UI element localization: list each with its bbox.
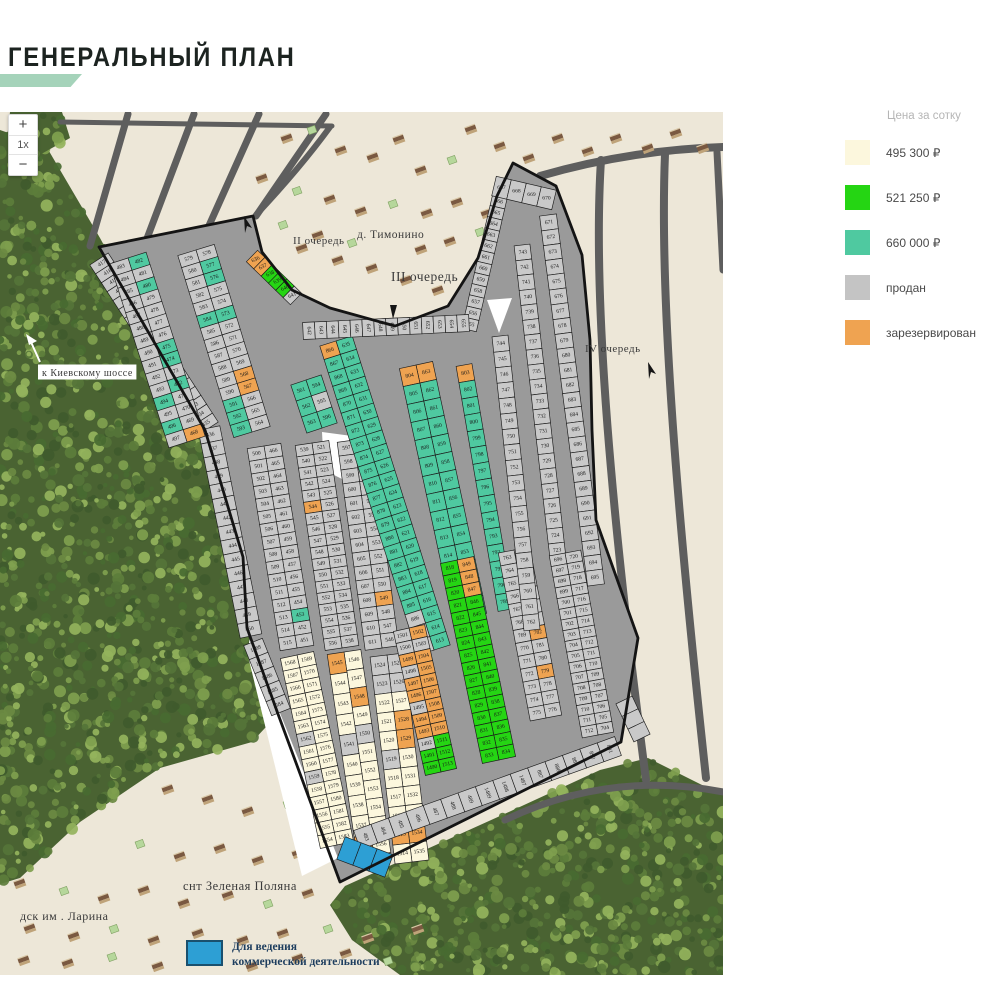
parcel-number: 685: [571, 426, 580, 433]
map-label: снт Зеленая Поляна: [183, 879, 297, 893]
parcel-number: 686: [573, 441, 582, 448]
parcel-number: 755: [515, 511, 524, 518]
parcel-number: 673: [548, 249, 557, 256]
parcel-number: 731: [539, 428, 548, 435]
parcel-number: 538: [345, 638, 354, 645]
parcel-number: 525: [323, 490, 332, 497]
parcel-number: 527: [327, 512, 336, 519]
legend-label: 495 300 ₽: [886, 146, 940, 160]
parcel-number: 532: [335, 569, 344, 576]
parcel-number: 756: [517, 526, 526, 533]
parcel-number: 759: [522, 573, 531, 580]
parcel-number: 736: [530, 354, 539, 361]
parcel-number: 674: [550, 264, 559, 271]
parcel-number: 740: [524, 294, 533, 301]
map-label: к Киевскому шоссе: [38, 365, 136, 380]
parcel-number: 543: [307, 492, 316, 499]
legend-label: продан: [886, 281, 926, 295]
parcel-number: 607: [361, 583, 370, 590]
parcel-number: 724: [551, 532, 560, 539]
map-canvas[interactable]: 4174184194204214224234244254264274284294…: [0, 112, 723, 975]
parcel-number: 669: [527, 192, 536, 198]
parcel-number: 549: [317, 560, 326, 567]
masterplan-map[interactable]: 4174184194204214224234244254264274284294…: [0, 112, 723, 975]
parcel-number: 647: [365, 324, 371, 333]
parcel-number: 644: [329, 325, 335, 334]
parcel-number: 682: [566, 382, 575, 389]
parcel-number: 610: [366, 625, 375, 632]
parcel-number: 550: [377, 581, 386, 588]
parcel-number: 693: [587, 545, 596, 552]
commercial-legend-label: Для ведения коммерческой деятельности: [232, 940, 380, 970]
parcel-number: 533: [337, 581, 346, 588]
swatch-price-660000: [845, 230, 870, 255]
parcel-number: 751: [508, 449, 517, 456]
svg-text:дск им . Ларина: дск им . Ларина: [20, 909, 109, 923]
map-label: III очередь: [391, 269, 458, 284]
parcel-number: 735: [532, 368, 541, 375]
parcel-number: 684: [569, 412, 578, 419]
parcel-number: 648: [377, 323, 383, 332]
legend-label: 660 000 ₽: [886, 236, 940, 250]
parcel-number: 600: [348, 486, 357, 493]
parcel-number: 744: [496, 341, 505, 348]
parcel-number: 603: [353, 528, 362, 535]
parcel-number: 556: [328, 640, 337, 647]
parcel-number: 522: [318, 456, 327, 463]
parcel-number: 548: [381, 609, 390, 616]
parcel-number: 551: [320, 583, 329, 590]
parcel-number: 681: [564, 367, 573, 374]
parcel-number: 688: [577, 471, 586, 478]
legend-item: 660 000 ₽: [845, 230, 995, 255]
parcel-number: 550: [318, 572, 327, 579]
parcel-number: 729: [542, 458, 551, 465]
parcel-number: 547: [313, 538, 322, 545]
parcel-number: 534: [338, 592, 347, 599]
legend-label: зарезервирован: [886, 326, 976, 340]
legend-title: Цена за сотку: [887, 110, 995, 122]
parcel-number: 551: [376, 567, 385, 574]
parcel-number: 528: [328, 524, 337, 531]
parcel-number: 542: [305, 481, 314, 488]
parcel-number: 597: [342, 445, 351, 452]
parcel-number: 760: [523, 588, 532, 595]
parcel-number: 723: [553, 547, 562, 554]
parcel-number: 689: [579, 486, 588, 493]
parcel-number: 758: [520, 557, 529, 564]
legend-label: 521 250 ₽: [886, 191, 940, 205]
parcel-number: 748: [503, 402, 512, 409]
legend-item: зарезервирован: [845, 320, 995, 345]
parcel-number: 754: [513, 495, 522, 502]
parcel-number: 745: [498, 356, 507, 363]
parcel-number: 536: [342, 615, 351, 622]
parcel-number: 535: [340, 604, 349, 611]
page: ГЕНЕРАЛЬНЫЙ ПЛАН 41741841942042142242342…: [0, 0, 1000, 1000]
parcel-number: 739: [525, 309, 534, 316]
price-legend: Цена за сотку 495 300 ₽ 521 250 ₽ 660 00…: [845, 106, 995, 365]
parcel-number: 541: [303, 469, 312, 476]
parcel-number: 548: [315, 549, 324, 556]
parcel-number: 741: [522, 279, 531, 286]
parcel-number: 752: [510, 464, 519, 471]
map-label: д. Тимонино: [357, 229, 424, 241]
svg-text:к Киевскому шоссе: к Киевскому шоссе: [42, 368, 133, 379]
parcel-number: 742: [520, 264, 529, 271]
zoom-in-button[interactable]: +: [9, 115, 37, 135]
map-label: II очередь: [293, 235, 345, 247]
swatch-sold: [845, 275, 870, 300]
parcel-number: 545: [310, 515, 319, 522]
parcel-number: 762: [527, 619, 536, 626]
parcel-number: 730: [541, 443, 550, 450]
parcel-number: 539: [300, 447, 309, 454]
parcel-number: 646: [353, 324, 359, 333]
parcel-number: 604: [355, 542, 364, 549]
parcel-number: 746: [500, 372, 509, 379]
parcel-number: 655: [460, 319, 466, 328]
parcel-number: 749: [505, 418, 514, 425]
parcel-number: 694: [589, 560, 598, 567]
parcel-number: 687: [575, 456, 584, 463]
parcel-number: 645: [341, 325, 347, 334]
parcel-number: 747: [501, 387, 510, 394]
parcel-number: 678: [558, 323, 567, 330]
parcel-number: 668: [512, 189, 521, 195]
parcel-number: 642: [305, 326, 311, 335]
parcel-number: 611: [368, 639, 377, 646]
parcel-number: 553: [372, 540, 381, 547]
zoom-level: 1x: [9, 135, 37, 155]
svg-text:II очередь: II очередь: [293, 235, 345, 247]
parcel-number: 695: [590, 574, 599, 581]
parcel-number: 605: [357, 556, 366, 563]
legend-item: продан: [845, 275, 995, 300]
parcel-number: 753: [512, 480, 521, 487]
map-label: IV очередь: [585, 343, 641, 355]
parcel-number: 544: [308, 504, 317, 511]
parcel-number: 654: [448, 320, 454, 329]
svg-text:снт Зеленая Поляна: снт Зеленая Поляна: [183, 879, 297, 893]
parcel-number: 726: [548, 503, 557, 510]
parcel-number: 555: [327, 629, 336, 636]
parcel-number: 738: [527, 324, 536, 331]
parcel-number: 691: [583, 515, 592, 522]
parcel-number: 601: [349, 500, 358, 507]
parcel-number: 671: [544, 219, 553, 226]
parcel-number: 725: [549, 517, 558, 524]
parcel-number: 547: [383, 623, 392, 630]
legend-item: 521 250 ₽: [845, 185, 995, 210]
parcel-number: 653: [436, 320, 442, 329]
parcel-number: 523: [320, 467, 329, 474]
parcel-number: 734: [534, 383, 543, 390]
commercial-legend: Для ведения коммерческой деятельности: [186, 940, 380, 970]
parcel-number: 680: [562, 352, 571, 359]
parcel-number: 651: [412, 321, 418, 330]
zoom-out-button[interactable]: −: [9, 155, 37, 175]
parcel-number: 526: [325, 501, 334, 508]
parcel-number: 743: [518, 249, 527, 256]
parcel-number: 531: [333, 558, 342, 565]
parcel-number: 540: [302, 458, 311, 465]
parcel-number: 546: [385, 637, 394, 644]
parcel-number: 732: [537, 413, 546, 420]
parcel-number: 750: [506, 433, 515, 440]
legend-item: 495 300 ₽: [845, 140, 995, 165]
swatch-reserved: [845, 320, 870, 345]
map-label: дск им . Ларина: [20, 909, 109, 923]
parcel-number: 728: [544, 473, 553, 480]
parcel-number: 670: [542, 196, 551, 202]
parcel-number: 608: [362, 597, 371, 604]
parcel-number: 552: [374, 553, 383, 560]
parcel-number: 690: [581, 500, 590, 507]
parcel-number: 521: [317, 444, 326, 451]
svg-text:IV очередь: IV очередь: [585, 343, 641, 355]
title-highlight: [0, 74, 82, 87]
parcel-number: 552: [322, 595, 331, 602]
parcel-number: 529: [330, 535, 339, 542]
parcel-number: 727: [546, 488, 555, 495]
parcel-number: 553: [323, 606, 332, 613]
parcel-number: 672: [546, 234, 555, 241]
parcel-number: 549: [379, 595, 388, 602]
parcel-number: 554: [325, 617, 334, 624]
parcel-number: 677: [556, 308, 565, 315]
parcel-number: 761: [525, 604, 534, 611]
parcel-number: 606: [359, 570, 368, 577]
parcel-number: 530: [332, 547, 341, 554]
parcel-number: 524: [322, 478, 331, 485]
parcel-number: 675: [552, 278, 561, 285]
parcel-number: 602: [351, 514, 360, 521]
parcel-number: 679: [560, 338, 569, 345]
parcel-number: 683: [567, 397, 576, 404]
parcel-number: 676: [554, 293, 563, 300]
svg-text:д. Тимонино: д. Тимонино: [357, 229, 424, 241]
zoom-control[interactable]: + 1x −: [8, 114, 38, 176]
swatch-commercial: [186, 940, 223, 966]
parcel-number: 733: [536, 398, 545, 405]
parcel-number: 652: [424, 321, 430, 330]
parcel-number: 609: [364, 611, 373, 618]
parcel-number: 546: [312, 526, 321, 533]
parcel-number: 643: [317, 326, 323, 335]
svg-text:III очередь: III очередь: [391, 269, 458, 284]
parcel-number: 599: [346, 473, 355, 480]
swatch-price-495300: [845, 140, 870, 165]
swatch-price-521250: [845, 185, 870, 210]
parcel-number: 537: [343, 626, 352, 633]
parcel-number: 598: [344, 459, 353, 466]
parcel-number: 692: [585, 530, 594, 537]
parcel-number: 757: [518, 542, 527, 549]
parcel-number: 737: [529, 339, 538, 346]
page-title: ГЕНЕРАЛЬНЫЙ ПЛАН: [8, 42, 296, 73]
